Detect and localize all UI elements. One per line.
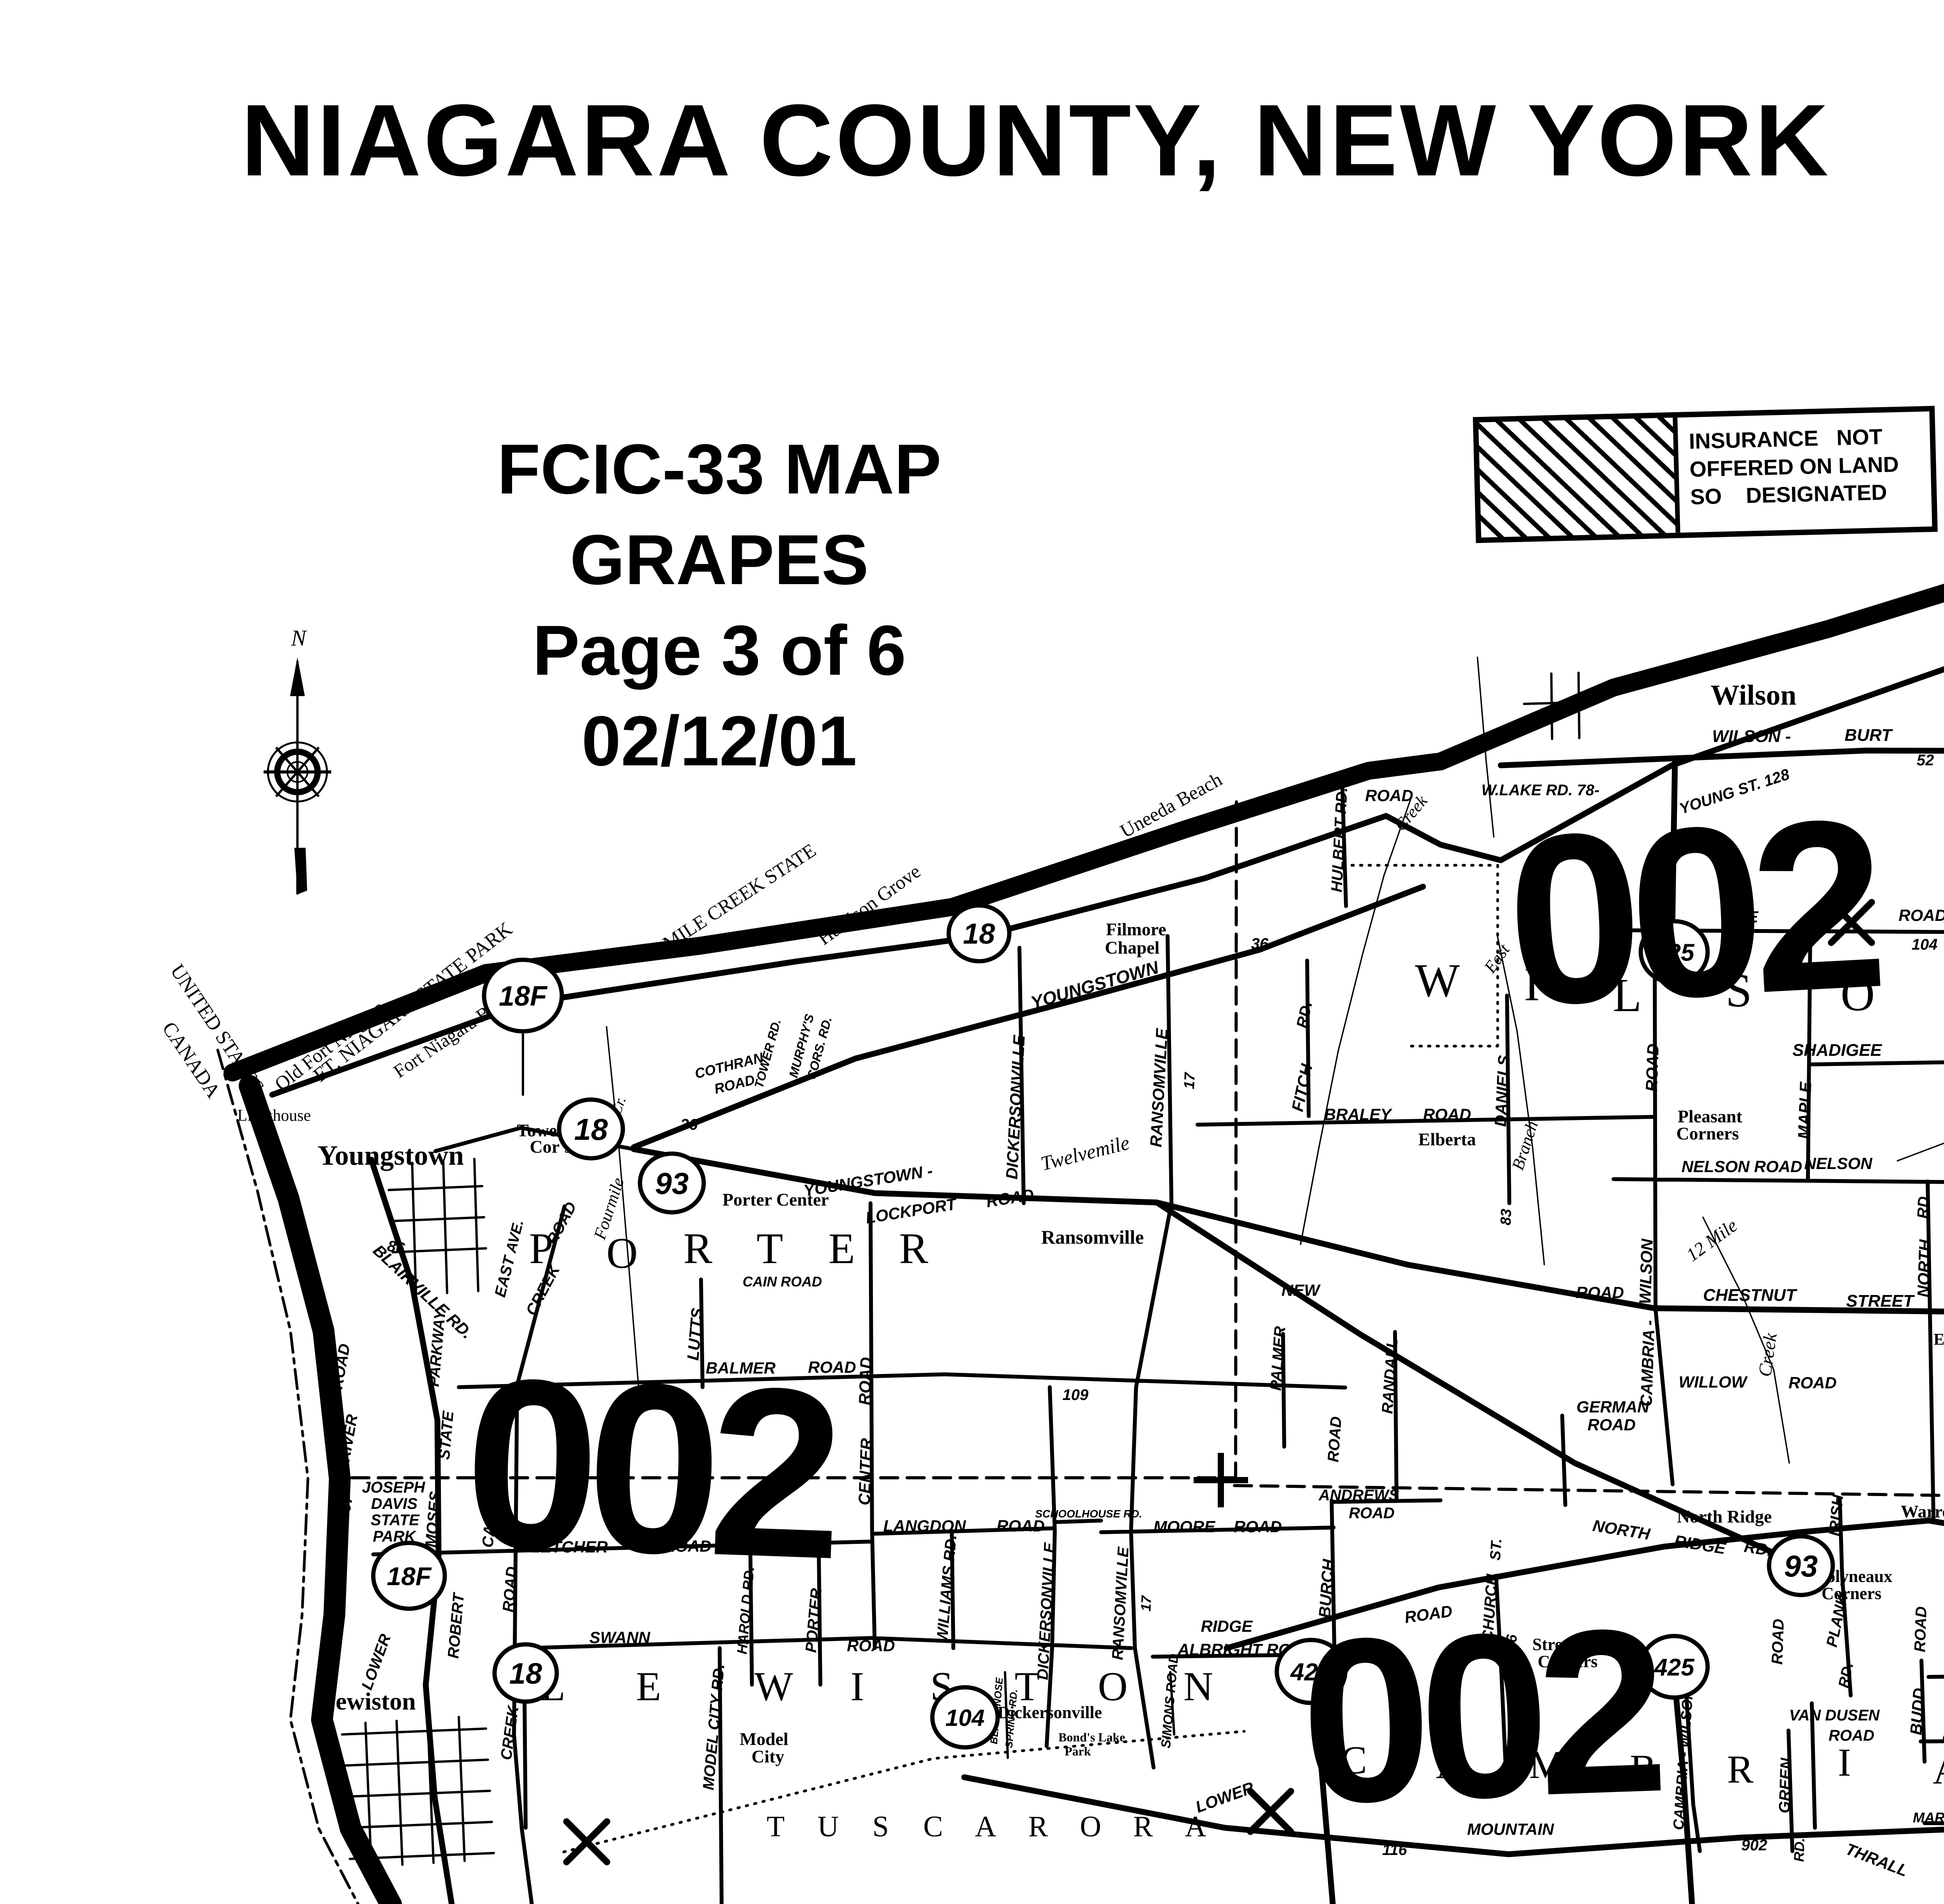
route-shield: 18: [495, 1644, 557, 1701]
map-label: ROAD: [855, 1357, 875, 1405]
route-shield-number: 18: [574, 1112, 608, 1146]
map-label: O: [607, 1229, 638, 1277]
map-label: T: [757, 1225, 783, 1273]
map-label: CARTER DRIVE: [1942, 1730, 1944, 1746]
map-label: 83: [1498, 1209, 1514, 1226]
map-label: City: [752, 1746, 784, 1766]
map-label: CAMBRIA -: [1637, 1320, 1658, 1407]
map-label: Corners: [1677, 1123, 1739, 1143]
map-label: 17: [1181, 1071, 1198, 1089]
map-label: ROAD: [847, 1636, 895, 1655]
map-label: North Ridge: [1677, 1507, 1772, 1526]
map-label: NORTH: [1914, 1239, 1934, 1298]
map-label: I: [850, 1664, 864, 1709]
map-label: JOSEPH: [362, 1479, 425, 1496]
route-shield-number: 18: [963, 918, 995, 950]
x-mark: [566, 1822, 607, 1862]
map-label: A: [975, 1810, 996, 1843]
map-label: VAN DUSEN: [1789, 1707, 1880, 1724]
map-label: RD.: [1914, 1192, 1932, 1219]
map-label: O: [1098, 1664, 1128, 1709]
map-label: EAST: [491, 1253, 518, 1299]
map-label: I: [1838, 1741, 1851, 1785]
map-label: AVE.: [503, 1218, 527, 1255]
area-code-stamp: 002: [1501, 768, 1887, 1056]
map-label: ROAD: [1423, 1105, 1471, 1123]
map-label: W: [1415, 954, 1460, 1007]
map-label: E: [829, 1225, 855, 1273]
map-label: CAIN ROAD: [743, 1274, 822, 1290]
map-label: O: [1080, 1810, 1101, 1843]
map-label: NELSON: [1804, 1154, 1873, 1172]
route-shield: 18F: [484, 960, 562, 1031]
map-label: CREEK: [498, 1704, 522, 1761]
map-label: T: [767, 1810, 785, 1843]
map-label: R: [1028, 1810, 1048, 1843]
map-label: 109: [1063, 1386, 1089, 1403]
map-label: 104: [1912, 936, 1938, 953]
map-label: SHADIGEE: [1792, 1041, 1882, 1060]
map-label: R: [1727, 1748, 1753, 1792]
map-label: LOWER: [1193, 1778, 1257, 1816]
map-label: 36: [680, 1116, 698, 1133]
map-label: DAVIS: [371, 1495, 418, 1512]
map-label: CHESTNUT: [1703, 1286, 1797, 1305]
map-label: FITCH: [1288, 1062, 1316, 1113]
map-label: Corners: [1822, 1584, 1881, 1603]
map-label: RD.: [1836, 1661, 1857, 1689]
map-label: NELSON ROAD: [1682, 1157, 1802, 1176]
map-label: Wilson: [1711, 679, 1797, 711]
map-label: IRISH: [1826, 1494, 1846, 1537]
route-shield: 93: [1769, 1536, 1833, 1595]
map-label: DICKERSONVILLE: [1034, 1542, 1059, 1680]
map-label: MODEL CITY RD.: [700, 1663, 728, 1791]
route-shield: 18F: [373, 1543, 445, 1608]
map-label: Bond's Lake: [1058, 1730, 1125, 1744]
map-label: RIDGE: [1673, 1531, 1728, 1558]
map-label: WILLOW: [1679, 1373, 1748, 1391]
route-shield-number: 18: [509, 1657, 542, 1690]
plus-mark: [1194, 1453, 1248, 1507]
map-label: GERMAN: [1577, 1398, 1650, 1416]
map-label: 86: [386, 1237, 406, 1257]
route-shield: 104: [932, 1687, 998, 1748]
route-shield-number: 104: [946, 1704, 985, 1731]
map-label: East: [1480, 940, 1514, 976]
map-label: ROAD: [1576, 1283, 1624, 1302]
map-label: ROAD: [1642, 1043, 1662, 1092]
route-shield: 93: [640, 1154, 704, 1213]
map-label: ROAD: [1234, 1517, 1282, 1536]
map-label: RD.: [1294, 1000, 1316, 1030]
county-map: NUNITED STATESCANADAOld Fort NiagaraFT. …: [0, 0, 1944, 1904]
route-shield-number: 93: [655, 1166, 689, 1200]
map-label: Creek: [1755, 1331, 1781, 1378]
map-label: E: [636, 1664, 661, 1709]
map-page: NIAGARA COUNTY, NEW YORK 36-063 FCIC-33 …: [0, 0, 1944, 1904]
map-label: ROAD: [1899, 906, 1944, 924]
map-label: 902: [1741, 1837, 1767, 1854]
map-label: BUDD: [1907, 1687, 1928, 1736]
map-label: RIDGE: [1201, 1617, 1253, 1635]
map-label: RANSOMVILLE: [1109, 1546, 1132, 1660]
map-label: 17: [1138, 1594, 1154, 1612]
map-label: Branch: [1508, 1118, 1542, 1172]
map-label: ROBERT: [445, 1591, 468, 1659]
map-label: Model: [739, 1729, 788, 1749]
map-label: Chapel: [1105, 938, 1160, 957]
map-label: PALMER: [1267, 1326, 1288, 1391]
map-label: ROAD: [985, 1185, 1035, 1211]
map-label: STATE: [371, 1512, 420, 1529]
map-label: N: [1184, 1664, 1213, 1709]
map-label: W: [754, 1664, 793, 1709]
map-label: ROAD: [1911, 1606, 1930, 1652]
map-label: ROAD: [1365, 786, 1413, 805]
map-label: SCHOOLHOUSE RD.: [1035, 1508, 1142, 1520]
route-shield-number: 93: [1784, 1549, 1818, 1583]
map-label: SIMONS ROAD: [1158, 1653, 1181, 1749]
map-label: Park: [1065, 1744, 1091, 1758]
map-label: ROAD: [1325, 1416, 1345, 1463]
map-label: HULBERT RD.: [1328, 787, 1351, 892]
map-label: PARKWAY: [425, 1308, 449, 1388]
map-label: ROAD: [1349, 1505, 1395, 1522]
map-label: ROAD: [1587, 1416, 1636, 1434]
map-label: S: [872, 1810, 889, 1843]
map-label: Lewiston: [319, 1687, 416, 1715]
area-code-stamp: 002: [461, 1328, 842, 1610]
map-label: DANIELS: [1491, 1055, 1513, 1127]
map-label: ROAD: [543, 1199, 580, 1248]
map-label: NEW: [1281, 1281, 1321, 1299]
map-label: LOWER: [358, 1632, 394, 1692]
map-label: 36: [1251, 935, 1269, 952]
map-label: MAPLE: [1794, 1081, 1815, 1139]
map-label: Youngstown: [318, 1140, 464, 1171]
map-label: WILSON: [1636, 1238, 1656, 1304]
map-label: CENTER: [855, 1438, 876, 1506]
map-label: Harrison Grove: [813, 860, 925, 949]
map-label: ST.: [1487, 1538, 1505, 1561]
map-label: ROAD: [1829, 1727, 1874, 1744]
map-label: SWANN: [589, 1628, 651, 1647]
map-label: BRALEY: [1324, 1105, 1393, 1123]
map-label: N: [291, 625, 308, 651]
area-code-stamp: 002: [1297, 1580, 1666, 1853]
map-label: THRALL: [1843, 1839, 1911, 1880]
map-label: MOORE: [1154, 1517, 1216, 1536]
map-label: R: [1133, 1810, 1153, 1843]
map-label: NORTH: [1591, 1516, 1652, 1543]
map-label: Twelvemile: [1038, 1132, 1132, 1175]
map-label: A: [1933, 1748, 1944, 1792]
map-label: Ransomville: [1041, 1226, 1144, 1248]
map-label: WILLIAMS RD.: [934, 1534, 960, 1643]
map-label: U: [818, 1810, 839, 1843]
map-label: Elberta: [1418, 1129, 1476, 1149]
map-label: LANGDON: [883, 1517, 967, 1535]
map-label: C: [923, 1810, 943, 1843]
route-shield-number: 18F: [499, 981, 548, 1012]
map-label: ANDREWS: [1318, 1487, 1399, 1504]
route-shield: 18: [949, 905, 1009, 961]
map-label: Lighthouse: [238, 1107, 311, 1125]
map-label: BURT: [1844, 726, 1893, 745]
x-mark: [1250, 1791, 1291, 1832]
map-label: MARJORIE DRIVE: [1913, 1809, 1944, 1825]
map-label: E. Wilson: [1934, 1331, 1944, 1349]
map-label: 52: [1917, 752, 1934, 769]
map-label: RANSOMVILLE: [1147, 1027, 1171, 1148]
map-label: ROAD: [1769, 1619, 1787, 1665]
map-label: R: [684, 1225, 713, 1273]
map-label: R: [899, 1225, 928, 1273]
compass-north-icon: [264, 657, 331, 894]
map-label: RD.: [1791, 1837, 1808, 1862]
map-label: A: [1185, 1810, 1206, 1843]
map-label: STREET: [1846, 1291, 1915, 1311]
map-label: GREEN: [1776, 1757, 1795, 1814]
route-shield-number: 425: [1653, 1654, 1695, 1681]
map-label: Filmore: [1106, 919, 1166, 939]
map-label: WILSON -: [1712, 727, 1791, 746]
route-shield-number: 18F: [387, 1562, 432, 1591]
map-label: LOCKPORT: [864, 1195, 959, 1227]
route-shield: 18: [559, 1100, 623, 1158]
map-label: Warrens Corners-: [1901, 1501, 1944, 1521]
map-label: 12 Mile: [1682, 1215, 1741, 1266]
map-label: ROAD: [1788, 1374, 1837, 1392]
